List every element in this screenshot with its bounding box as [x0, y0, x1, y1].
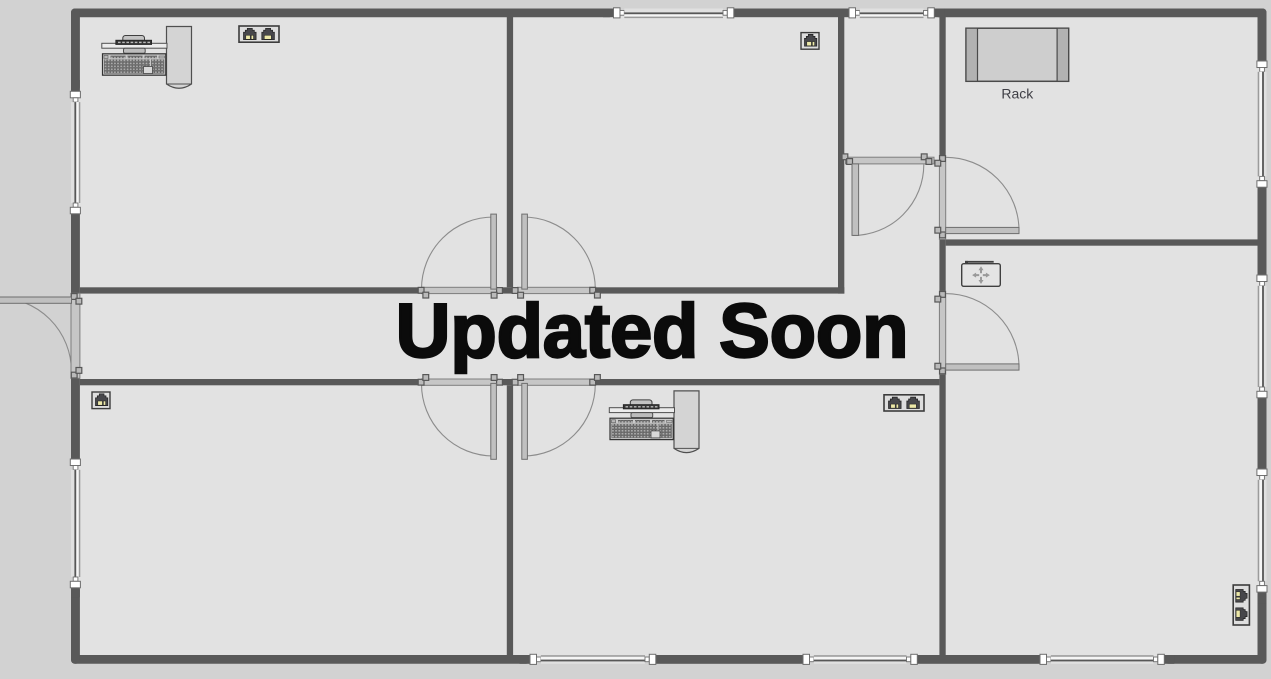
svg-text:Updated Soon: Updated Soon — [396, 289, 909, 374]
svg-text:Rack: Rack — [1001, 86, 1034, 102]
